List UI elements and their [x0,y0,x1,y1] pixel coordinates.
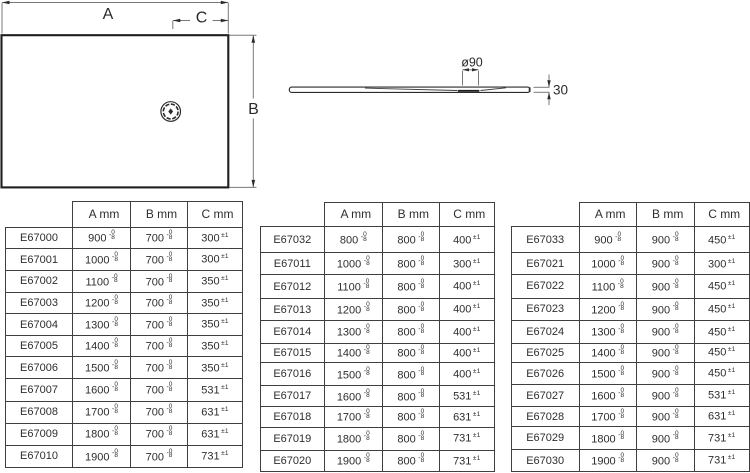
svg-text:C: C [196,9,208,26]
svg-text:A: A [103,6,114,23]
svg-text:30: 30 [553,83,568,98]
svg-text:B: B [248,101,259,118]
svg-text:ø90: ø90 [461,56,483,70]
